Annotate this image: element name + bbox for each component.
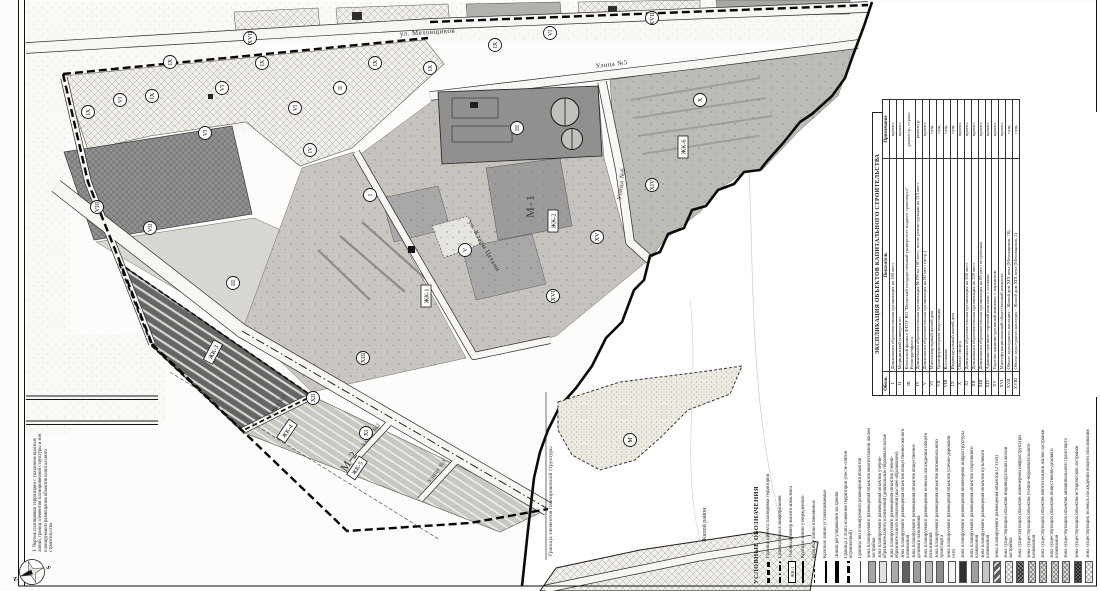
legend-item-label: Зона планируемого размещения объектов об… <box>901 426 911 558</box>
legend-item-label: Зона существующих объектов многоэтажной … <box>1041 426 1046 558</box>
map-marker: VI <box>216 82 229 95</box>
legend-item: ЖК-1Условный номер жилого комплекса <box>786 424 797 584</box>
map-marker-numeral: VI <box>293 105 299 111</box>
map-marker: XI <box>360 427 373 440</box>
table-row: VIIIКотельнаясущ. <box>943 100 950 396</box>
legend-item: Зона существующих объектов инженерной ин… <box>1015 424 1026 584</box>
compass-rose: N S <box>9 553 56 591</box>
legend-item-label: Зона существующих объектов исторической … <box>1075 426 1080 558</box>
legend-item: Граница зон планируемого размещения объе… <box>855 424 866 584</box>
object-number: XV <box>992 372 999 396</box>
legend-item-label: Линии регулирования застройки <box>835 426 840 558</box>
map-marker: VI <box>544 27 557 40</box>
legend-item: Зоны планируемого размещения объектов (2… <box>992 424 1003 584</box>
table-row: XVТоргово-административный комплекс с па… <box>992 100 999 396</box>
object-indicator: Казанский филиал ФГОУ ВО "Волжский госуд… <box>904 159 916 372</box>
microdistrict-label: М-1 <box>523 194 537 218</box>
object-indicator: Многоквартирный жилой дом <box>929 159 936 372</box>
table-row: XIIДошкольная образовательная организаци… <box>971 100 978 396</box>
explication-grid: Обозн.ПоказательПримечание IДошкольная о… <box>882 99 1020 396</box>
legend-item: Зона планируемого размещения объектов мн… <box>866 424 877 584</box>
legend-swatch <box>1051 561 1059 583</box>
map-marker-numeral: IX <box>428 64 434 71</box>
object-indicator: Котельная <box>943 159 950 372</box>
legend-swatch <box>1062 561 1070 583</box>
object-note: проект. <box>999 100 1006 159</box>
object-number: VIII <box>943 372 950 396</box>
map-marker: IX <box>369 57 382 70</box>
map-annotation: Граница элементов планировочной структур… <box>547 446 554 556</box>
legend-swatch <box>879 561 887 583</box>
object-note: сущ. <box>929 100 936 159</box>
object-note: проект. <box>971 100 978 159</box>
legend-swatch <box>891 561 899 583</box>
map-marker: IX <box>82 106 95 119</box>
map-marker-numeral: IX <box>260 59 266 66</box>
map-marker: II <box>334 82 347 95</box>
table-column-header: Показатель <box>883 159 890 372</box>
legend-item-label: Зона планируемого размещения объектов сп… <box>970 426 980 558</box>
object-note: проект. <box>897 100 904 159</box>
map-marker: III <box>227 277 240 290</box>
object-indicator: Медицинский университет <box>897 159 904 372</box>
table-row: VIIТрансформаторная подстанциясущ. <box>936 100 943 396</box>
legend-swatch <box>1085 561 1093 583</box>
map-marker: IV <box>304 144 317 157</box>
map-marker-numeral: VI <box>203 130 209 136</box>
table-title: ЭКСПЛИКАЦИЯ ОБЪЕКТОВ КАПИТАЛЬНОГО СТРОИТ… <box>872 112 882 396</box>
map-marker-numeral: XIII <box>361 353 367 363</box>
legend-item-label: Зона планируемого размещения объектов ул… <box>947 426 957 558</box>
map-marker: VI <box>199 127 212 140</box>
table-row: XVIМногофункциональный общественный комп… <box>999 100 1006 396</box>
map-marker-numeral: XVIII <box>650 11 656 26</box>
legend-item: Зона планируемого размещения объектов уч… <box>877 424 888 584</box>
housing-complex-label-text: ЖК-1 <box>423 289 430 304</box>
legend-item-label: Зона планируемого размещения объектов ку… <box>981 426 991 558</box>
object-indicator: Дошкольная образовательная организация н… <box>978 159 985 372</box>
map-marker: VII <box>144 222 157 235</box>
table-row: XVIIОбъект культурного наследия - Жилой … <box>1006 100 1013 396</box>
legend-item-label: Граница жилых микрорайонов <box>778 426 783 558</box>
legend-swatch <box>925 561 933 583</box>
legend-item: Красные линии устанавливаемые <box>820 424 831 584</box>
object-note: проект. <box>978 100 985 159</box>
legend-item-label: Зона существующих объектов общественно-д… <box>1050 426 1060 558</box>
map-marker-numeral: IX <box>86 108 92 115</box>
map-marker-numeral: I <box>368 194 374 196</box>
object-note: проект. <box>964 100 971 159</box>
legend-item-label: Красные линии отменяемые <box>812 426 817 558</box>
object-number: XII <box>971 372 978 396</box>
legend-item-label: Красные линии устанавливаемые <box>823 426 828 558</box>
legend-item: Граница 2 этапа освоения территории (пос… <box>843 424 854 584</box>
map-marker: XII <box>307 392 320 405</box>
table-row: IДошкольная образовательная организация … <box>890 100 897 396</box>
map-marker-numeral: XV <box>595 232 601 241</box>
legend-item-label: Граница зон планируемого размещения объе… <box>858 426 863 558</box>
object-number: XIV <box>985 372 992 396</box>
table-row: IXИндивидуальный жилой домсущ. <box>950 100 957 396</box>
object-indicator: Дошкольная образовательная организация н… <box>922 159 929 372</box>
object-note: сущ. <box>936 100 943 159</box>
compass-south-label: S <box>46 564 53 570</box>
legend-item-label: Зона существующих объектов автомобильног… <box>1064 426 1069 558</box>
object-number: I <box>890 372 897 396</box>
map-marker-numeral: XII <box>311 394 317 402</box>
object-number: V <box>922 372 929 396</box>
table-row: XIVАдминистративно-торговый комплекс с о… <box>985 100 992 396</box>
legend-swatch <box>860 561 861 583</box>
legend-item: Зона существующих объектов автомобильног… <box>1060 424 1071 584</box>
legend-item-label: Граница проекта планировки территории <box>766 426 771 558</box>
explication-table: ЭКСПЛИКАЦИЯ ОБЪЕКТОВ КАПИТАЛЬНОГО СТРОИТ… <box>872 112 1098 397</box>
legend-item-label: Зона существующих объектов учебно-образо… <box>1027 426 1037 558</box>
map-marker: IX <box>424 62 437 75</box>
legend-swatch <box>767 561 770 583</box>
object-indicator: Объект культурного наследия - Жилой дом … <box>1013 159 1020 372</box>
object-indicator: Дошкольная образовательная организация н… <box>890 159 897 372</box>
map-marker: XIII <box>357 352 370 365</box>
object-indicator: Административно-торговый комплекс с отел… <box>985 159 992 372</box>
legend-swatch <box>779 561 781 583</box>
object-number: XI <box>964 372 971 396</box>
map-marker: IX <box>164 56 177 69</box>
map-annotation: Жилой район <box>701 507 708 542</box>
object-number: XVIII <box>1013 372 1020 396</box>
map-marker: XVI <box>547 290 560 303</box>
map-marker-numeral: XIV <box>650 179 656 190</box>
object-number: X <box>957 372 964 396</box>
legend-swatch: ЖК-1 <box>788 561 796 583</box>
map-marker-numeral: М <box>628 437 634 443</box>
map-marker: IX <box>256 57 269 70</box>
map-marker: XVII <box>244 32 257 45</box>
legend-item: Зона планируемого размещения инженерной … <box>957 424 968 584</box>
housing-complex-label-text: ЖК-6 <box>680 140 687 155</box>
legend-swatch <box>971 561 979 583</box>
legend-swatch <box>802 561 804 583</box>
legend-item-label: Зона планируемого размещения объектов уч… <box>890 426 900 558</box>
table-row: IIIКазанский филиал ФГОУ ВО "Волжский го… <box>904 100 916 396</box>
object-note: проект. <box>992 100 999 159</box>
legend-item-label: Зона планируемого размещения объектов об… <box>912 426 922 558</box>
object-note: сущ. <box>943 100 950 159</box>
legend-item: Зона планируемого размещения зеленых нас… <box>923 424 934 584</box>
map-marker: X <box>694 94 707 107</box>
map-marker: III <box>511 122 524 135</box>
legend-swatch <box>1028 561 1036 583</box>
map-marker: XV <box>591 231 604 244</box>
legend-swatch <box>982 561 990 583</box>
table-row: VIМногоквартирный жилой домсущ. <box>929 100 936 396</box>
legend-item: Зона существующих объектов общественно-д… <box>1049 424 1060 584</box>
legend-item-label: Зона существующих объектов индивидуально… <box>1004 426 1014 558</box>
legend-item: Красные линии отменяемые <box>809 424 820 584</box>
map-marker: М <box>624 434 637 447</box>
legend-item: Зона планируемого размещения объектов об… <box>900 424 911 584</box>
legend-item-label: Зона планируемого размещения зеленых нас… <box>924 426 934 558</box>
legend-swatch <box>847 561 850 583</box>
map-marker-numeral: IX <box>373 59 379 66</box>
housing-complex-label: ЖК-1 <box>421 285 431 307</box>
map-marker: XVIII <box>646 11 659 26</box>
plan-sheet: N S ул. МеховщиковУлица №5Улица №6ул. Кл… <box>0 0 1100 591</box>
legend-swatch <box>959 561 967 583</box>
legend-swatch <box>1016 561 1024 583</box>
legend-swatch <box>1074 561 1082 583</box>
map-marker-numeral: III <box>231 280 237 286</box>
object-note: проект. <box>957 100 964 159</box>
table-row: IVДошкольная образовательная организация… <box>915 100 922 396</box>
map-marker-numeral: IX <box>150 92 156 99</box>
legend-swatch <box>913 561 921 583</box>
legend-item: Зона планируемого размещения объектов ку… <box>980 424 991 584</box>
object-indicator: Дошкольная образовательная организация №… <box>915 159 922 372</box>
legend-swatch <box>993 561 1001 583</box>
legend-item: Красные линии утвержденные <box>797 424 808 584</box>
object-indicator: Объект спорта <box>957 159 964 372</box>
object-number: XVI <box>999 372 1006 396</box>
object-number: IX <box>950 372 957 396</box>
legend-swatch <box>936 561 944 583</box>
map-marker: XIV <box>646 179 659 192</box>
legend-item: Зона существующих объектов учебно-образо… <box>1026 424 1037 584</box>
table-row: XОбъект спортапроект. <box>957 100 964 396</box>
legend-item-label: Зона планируемого размещения объектов уч… <box>878 426 889 558</box>
legend-item-label: Зоны планируемого размещения объектов (2… <box>995 426 1000 558</box>
legend-item: Зона существующих объектов исторической … <box>1072 424 1083 584</box>
object-indicator: Дошкольная образовательная организация н… <box>971 159 978 372</box>
map-marker-numeral: VIII <box>95 202 101 212</box>
legend-item: Зона существующих объектов многоэтажной … <box>1038 424 1049 584</box>
map-marker: I <box>364 189 377 202</box>
building-footprint <box>208 94 213 99</box>
legend-swatch <box>825 561 828 583</box>
legend-item-label: Зона существующих объектов инженерной ин… <box>1018 426 1023 558</box>
map-marker: VIII <box>91 201 104 214</box>
housing-complex-label-text: ЖК-2 <box>550 214 557 229</box>
table-row: XVIIIОбъект культурного наследия - Жилой… <box>1013 100 1020 396</box>
legend-item-label: Граница 2 этапа освоения территории (пос… <box>844 426 854 558</box>
object-number: III <box>904 372 916 396</box>
legend-item-label: Зона существующих зеленых насаждений общ… <box>1086 426 1091 558</box>
legend-item: Зона планируемого размещения объектов уч… <box>889 424 900 584</box>
map-marker-numeral: X <box>698 97 704 102</box>
object-note: проект. <box>890 100 897 159</box>
table-row: XIДошкольная образовательная организация… <box>964 100 971 396</box>
object-indicator: Торгово-административный комплекс с парк… <box>992 159 999 372</box>
map-marker-numeral: VI <box>220 85 226 91</box>
legend-swatch <box>868 561 876 583</box>
legend-item: Зона существующих зеленых насаждений общ… <box>1083 424 1094 584</box>
table-row: IIМедицинский университетпроект. <box>897 100 904 396</box>
legend-item: Зона планируемого размещения объектов сп… <box>969 424 980 584</box>
legend-title: УСЛОВНЫЕ ОБОЗНАЧЕНИЯ <box>750 424 763 584</box>
map-marker-numeral: VI <box>548 30 554 36</box>
legend-item-label: Условный номер жилого комплекса <box>789 426 794 558</box>
object-indicator: Трансформаторная подстанция <box>936 159 943 372</box>
legend-swatch <box>948 561 956 583</box>
object-indicator: Объект культурного наследия - Жилой дом … <box>1006 159 1013 372</box>
street-label: Улица №5 <box>595 59 628 70</box>
map-marker-numeral: III <box>515 125 521 131</box>
object-note: сущ. <box>1013 100 1020 159</box>
object-indicator: Дошкольная образовательная организация н… <box>964 159 971 372</box>
map-marker-numeral: IX <box>168 58 174 65</box>
object-note: сущ. <box>950 100 957 159</box>
object-number: XVII <box>1006 372 1013 396</box>
map-marker-numeral: IV <box>308 146 314 153</box>
map-marker-numeral: VII <box>148 224 154 232</box>
map-marker-numeral: XVI <box>551 291 557 302</box>
table-row: VДошкольная образовательная организация … <box>922 100 929 396</box>
object-note: проект. <box>922 100 929 159</box>
object-number: II <box>897 372 904 396</box>
map-marker-numeral: XI <box>364 430 370 436</box>
map-marker-numeral: II <box>338 86 344 90</box>
object-note: проект. <box>985 100 992 159</box>
legend-item-label: Зона планируемого размещения инженерной … <box>961 426 966 558</box>
object-number: IV <box>915 372 922 396</box>
map-marker: VI <box>114 94 127 107</box>
map-marker: IX <box>146 90 159 103</box>
legend-swatch <box>902 561 910 583</box>
map-marker-numeral: VI <box>118 97 124 103</box>
map-marker: V <box>459 244 472 257</box>
legend-swatch <box>814 561 815 583</box>
legend-item: Линии регулирования застройки <box>832 424 843 584</box>
building-footprint <box>408 246 415 253</box>
table-column-header: Обозн. <box>883 372 890 396</box>
map-marker-numeral: V <box>463 247 469 252</box>
legend-swatch <box>1039 561 1047 583</box>
legend-swatch <box>835 561 839 583</box>
map-marker-numeral: XVII <box>248 32 254 45</box>
object-note: реконстр., строит. <box>904 100 916 159</box>
map-marker-numeral: IX <box>493 41 499 48</box>
legend-item: Зона планируемого размещения объектов ул… <box>946 424 957 584</box>
legend-item-label: Зона планируемого размещения объектов ав… <box>935 426 945 558</box>
table-row: XIIIДошкольная образовательная организац… <box>978 100 985 396</box>
object-number: VII <box>936 372 943 396</box>
sheet-note-text: 1. Чертеж планировки территории с указан… <box>33 432 59 552</box>
legend-item-label: Зона планируемого размещения объектов мн… <box>867 426 877 558</box>
housing-complex-label: ЖК-2 <box>548 210 558 232</box>
object-number: XIII <box>978 372 985 396</box>
legend-item: Зона планируемого размещения объектов ав… <box>935 424 946 584</box>
object-note: реконстр. <box>915 100 922 159</box>
table-column-header: Примечание <box>883 100 890 159</box>
object-indicator: Многофункциональный общественный комплек… <box>999 159 1006 372</box>
legend-item: Зона существующих объектов индивидуально… <box>1003 424 1014 584</box>
sheet-note: 1. Чертеж планировки территории с указан… <box>33 432 59 552</box>
legend-item: Граница проекта планировки территории <box>763 424 774 584</box>
legend-item: Зона планируемого размещения объектов об… <box>912 424 923 584</box>
legend-item: Граница жилых микрорайонов <box>774 424 785 584</box>
map-marker: IX <box>489 39 502 52</box>
legend-item-label: Красные линии утвержденные <box>801 426 806 558</box>
housing-complex-label: ЖК-6 <box>678 136 688 158</box>
map-marker: VI <box>289 102 302 115</box>
object-note: сущ. <box>1006 100 1013 159</box>
object-number: VI <box>929 372 936 396</box>
legend-swatch <box>1005 561 1013 583</box>
legend: УСЛОВНЫЕ ОБОЗНАЧЕНИЯ Граница проекта пла… <box>750 424 1097 585</box>
object-indicator: Индивидуальный жилой дом <box>950 159 957 372</box>
